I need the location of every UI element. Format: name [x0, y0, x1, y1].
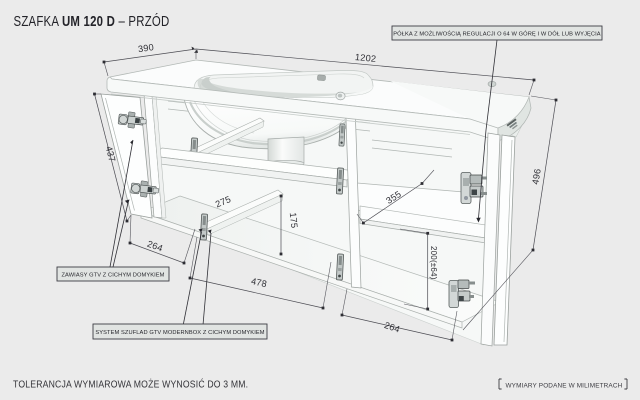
svg-text:175: 175 [288, 212, 300, 229]
svg-text:TOLERANCJA WYMIAROWA MOŻE WYNO: TOLERANCJA WYMIAROWA MOŻE WYNOSIĆ DO 3 M… [13, 379, 248, 390]
svg-text:1202: 1202 [355, 52, 377, 64]
svg-text:WYMIARY PODANE W MILIMETRACH: WYMIARY PODANE W MILIMETRACH [506, 383, 623, 390]
svg-text:SZAFKA UM 120 D – PRZÓD: SZAFKA UM 120 D – PRZÓD [14, 12, 170, 29]
svg-text:ZAWIASY GTV Z CICHYM DOMYKIEM: ZAWIASY GTV Z CICHYM DOMYKIEM [61, 273, 164, 279]
svg-text:SYSTEM SZUFLAD GTV MODERNBOX Z: SYSTEM SZUFLAD GTV MODERNBOX Z CICHYM DO… [95, 330, 264, 336]
svg-text:PÓŁKA Z MOŻLIWOŚCIĄ REGULACJI: PÓŁKA Z MOŻLIWOŚCIĄ REGULACJI O 64 W GÓR… [393, 30, 601, 38]
svg-text:200(±64): 200(±64) [429, 246, 438, 280]
